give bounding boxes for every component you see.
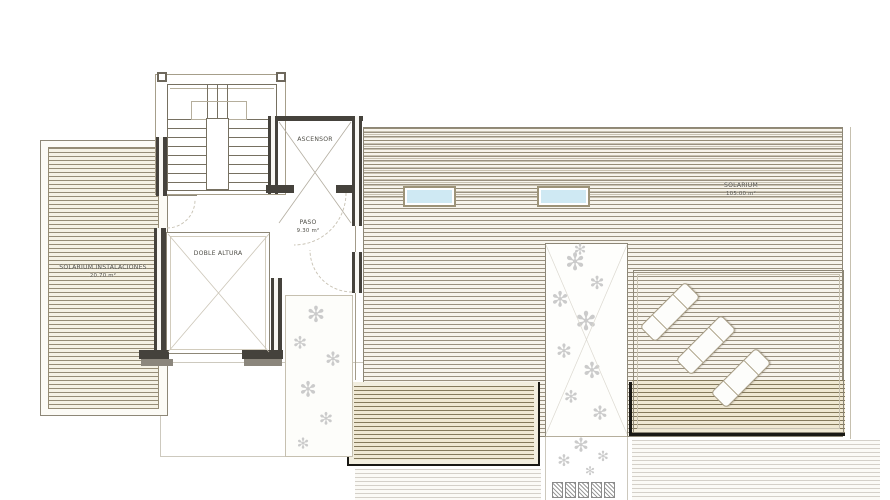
room-label-doble-altura: DOBLE ALTURA xyxy=(194,250,243,258)
room-label-text: SOLARIUM xyxy=(724,182,758,190)
floor-plan-canvas: ✻ ✻ ✻ ✻ ✻ ✻ ✻ ✻ ✻ ✻ ✻ ✻ ✻ ✻ ✻ ✻ ✻ ✻ ✻ xyxy=(0,0,890,500)
stair-stringer xyxy=(206,118,229,190)
stepping-stone xyxy=(565,482,576,498)
corridor-wall-pier xyxy=(352,252,362,293)
stepping-stone xyxy=(578,482,589,498)
lower-level-deck-right xyxy=(632,440,880,500)
room-label-solarium-instalaciones: SOLARIUM INSTALACIONES 20.70 m² xyxy=(59,264,147,279)
void-wall-east xyxy=(271,278,282,359)
stepping-stone xyxy=(604,482,615,498)
room-area-text: 105.00 m² xyxy=(724,190,758,197)
wall-t-left xyxy=(139,350,169,359)
core-wall-west xyxy=(154,228,166,361)
room-area-text: 9.30 m² xyxy=(297,227,320,234)
stepping-stone xyxy=(591,482,602,498)
room-label-text: DOBLE ALTURA xyxy=(194,250,243,258)
pergola-block-right-bottom xyxy=(629,433,845,436)
stair-newel-post xyxy=(276,72,286,82)
pergola-block-right-edge xyxy=(629,382,632,436)
room-label-ascensor: ASCENSOR xyxy=(297,136,332,144)
pergola-block-left-louvres xyxy=(354,386,534,460)
skylight xyxy=(403,186,456,207)
skylight xyxy=(537,186,590,207)
wall-t-right xyxy=(242,350,283,359)
room-label-text: PASO xyxy=(297,219,320,227)
room-label-text: ASCENSOR xyxy=(297,136,332,144)
planter-core-side xyxy=(285,295,353,457)
stair-newel-post xyxy=(157,72,167,82)
room-label-solarium: SOLARIUM 105.00 m² xyxy=(724,182,758,197)
elevator-wall-left xyxy=(268,116,278,194)
elevator-wall-right xyxy=(352,116,362,226)
room-label-text: SOLARIUM INSTALACIONES xyxy=(59,264,147,272)
room-area-text: 20.70 m² xyxy=(59,272,147,279)
planter-middle xyxy=(545,243,628,437)
wall-t-right-base xyxy=(244,359,282,366)
lower-level-deck-left xyxy=(355,469,541,500)
room-label-paso: PASO 9.30 m² xyxy=(297,219,320,234)
stepping-stone xyxy=(552,482,563,498)
parapet-outer-line xyxy=(850,127,851,439)
elevator-wall-top xyxy=(268,116,363,121)
core-wall-pier xyxy=(156,137,167,196)
stair-header-line xyxy=(170,88,274,89)
wall-t-left-base xyxy=(141,359,173,366)
elevator-wall-foot xyxy=(266,185,294,193)
